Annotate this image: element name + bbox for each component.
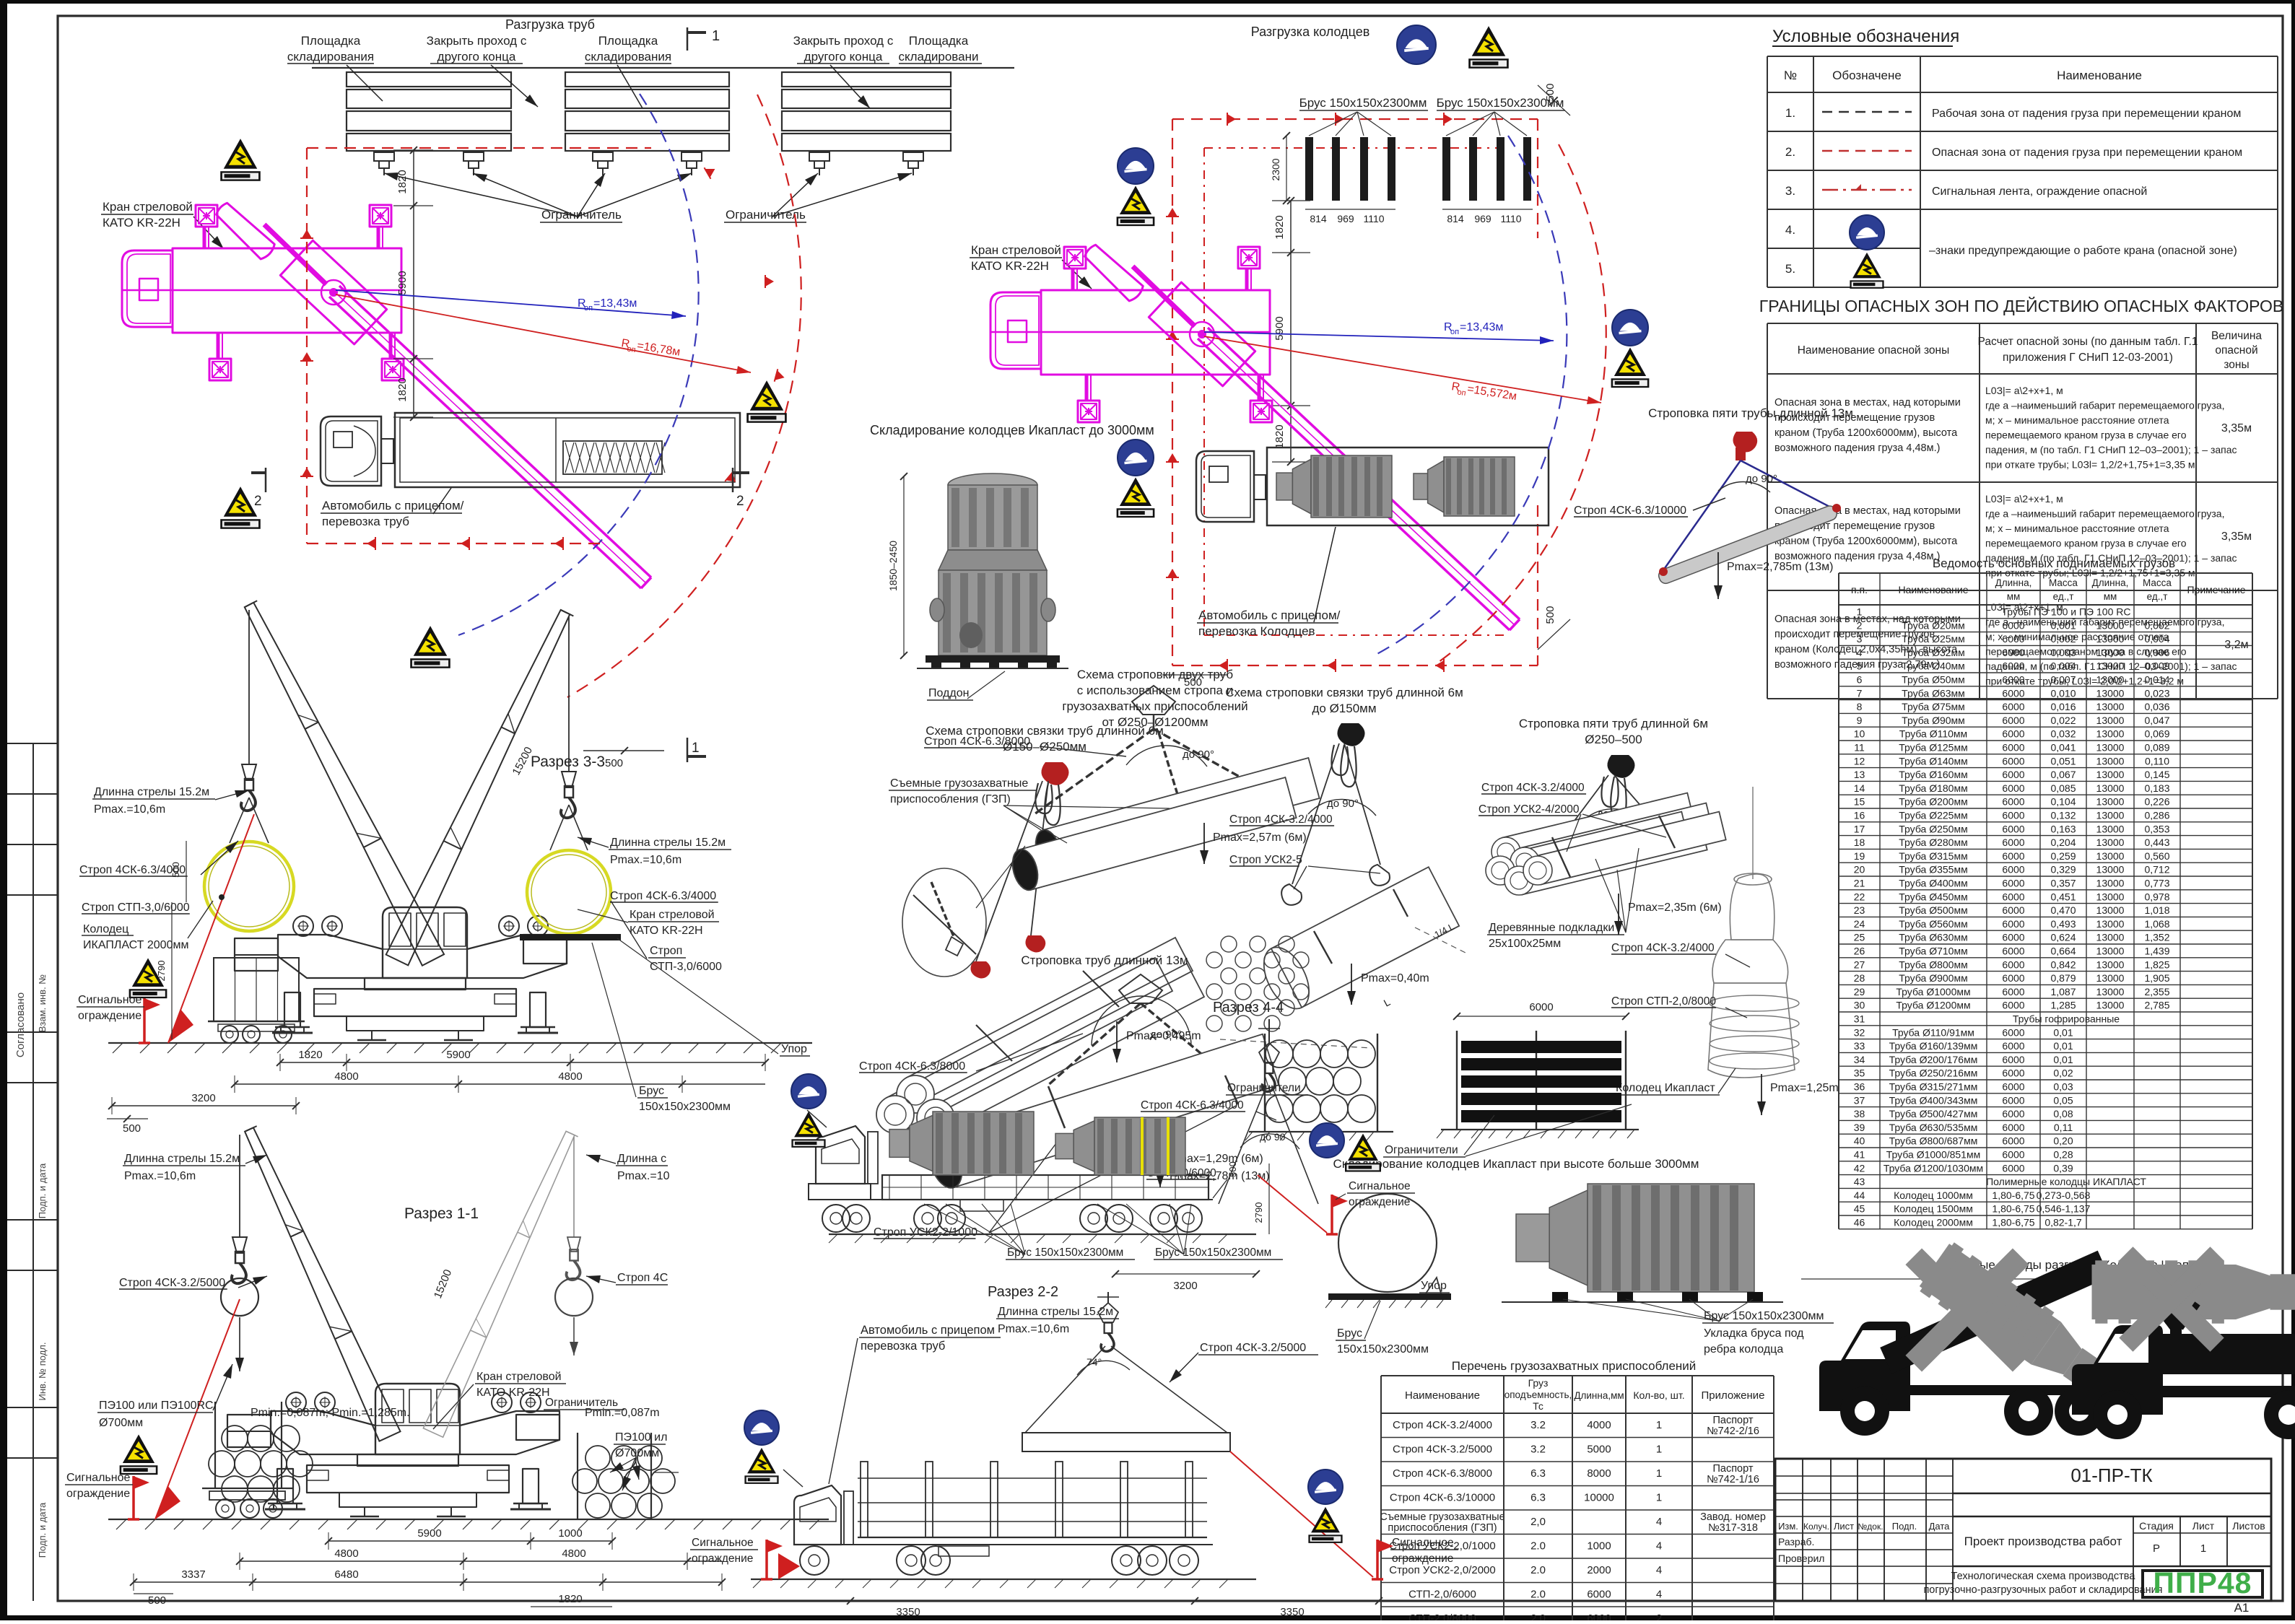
svg-text:6000: 6000 <box>2002 864 2024 876</box>
svg-text:Ограничитель: Ограничитель <box>545 1397 618 1409</box>
svg-text:оп: оп <box>584 304 593 313</box>
svg-text:до 90°: до 90° <box>1327 798 1359 810</box>
svg-text:13000: 13000 <box>2096 891 2125 902</box>
svg-text:4: 4 <box>1857 647 1863 658</box>
svg-text:Pmax.=10,6m: Pmax.=10,6m <box>610 854 681 866</box>
svg-text:1820: 1820 <box>558 1593 582 1605</box>
svg-text:Труба Ø200мм: Труба Ø200мм <box>1899 796 1967 808</box>
svg-text:Труба Ø560мм: Труба Ø560мм <box>1899 918 1967 930</box>
svg-text:краном (Труба 1200х6000мм), вы: краном (Труба 1200х6000мм), высота <box>1774 427 1958 439</box>
svg-text:Складирование колодцев Икаплас: Складирование колодцев Икапласт при высо… <box>1333 1157 1699 1171</box>
svg-text:до 90°: до 90° <box>1150 1029 1182 1041</box>
svg-text:34: 34 <box>1854 1054 1865 1065</box>
svg-text:возможного падения груза 4,48м: возможного падения груза 4,48м.) <box>1774 442 1940 454</box>
svg-text:Длинна стрелы 15.2м: Длинна стрелы 15.2м <box>124 1153 240 1165</box>
svg-text:СТП-2,0/6000: СТП-2,0/6000 <box>1408 1589 1476 1601</box>
svg-text:3350: 3350 <box>896 1606 920 1618</box>
svg-text:6000: 6000 <box>1529 1001 1553 1013</box>
svg-text:6000: 6000 <box>2002 850 2024 862</box>
svg-text:ограждение: ограждение <box>1392 1553 1453 1565</box>
svg-text:Труба Ø280мм: Труба Ø280мм <box>1899 837 1967 848</box>
svg-text:Р: Р <box>2153 1542 2160 1555</box>
svg-text:0,01: 0,01 <box>2053 1040 2073 1052</box>
svg-text:6000: 6000 <box>2002 1122 2024 1133</box>
svg-text:Труба Ø200/176мм: Труба Ø200/176мм <box>1889 1054 1978 1065</box>
svg-text:1: 1 <box>1656 1444 1662 1456</box>
svg-text:8: 8 <box>1857 701 1863 712</box>
svg-text:0,01: 0,01 <box>2053 1054 2073 1065</box>
svg-text:Укладка бруса под: Укладка бруса под <box>1704 1327 1804 1340</box>
svg-text:0,28: 0,28 <box>2053 1149 2073 1161</box>
svg-text:2000: 2000 <box>1587 1564 1611 1576</box>
svg-text:2300: 2300 <box>1270 158 1281 180</box>
svg-text:0,032: 0,032 <box>2050 728 2076 740</box>
svg-text:13000: 13000 <box>2096 647 2125 658</box>
svg-text:Строп СТП-3,0/6000: Строп СТП-3,0/6000 <box>82 902 190 914</box>
svg-text:Труба Ø710мм: Труба Ø710мм <box>1899 946 1967 957</box>
svg-text:42: 42 <box>1854 1162 1865 1174</box>
svg-text:Строп 4СК-3.2/4000: Строп 4СК-3.2/4000 <box>1393 1419 1492 1431</box>
svg-text:Труба Ø500/427мм: Труба Ø500/427мм <box>1889 1108 1978 1119</box>
svg-text:Кран стреловой: Кран стреловой <box>971 243 1061 257</box>
svg-text:0,041: 0,041 <box>2050 742 2076 754</box>
svg-text:где а –наименьший габарит пере: где а –наименьший габарит перемещаемого … <box>1985 508 2224 520</box>
svg-text:500: 500 <box>1544 606 1556 624</box>
svg-text:6000: 6000 <box>2002 1000 2024 1011</box>
svg-text:2: 2 <box>254 494 262 509</box>
svg-text:0,010: 0,010 <box>2050 687 2076 699</box>
svg-text:2.: 2. <box>1785 145 1795 159</box>
svg-text:Брус 150х150х2300мм: Брус 150х150х2300мм <box>1299 96 1427 110</box>
svg-text:ГРАНИЦЫ ОПАСНЫХ ЗОН ПО ДЕЙСТВИ: ГРАНИЦЫ ОПАСНЫХ ЗОН ПО ДЕЙСТВИЮ ОПАСНЫХ … <box>1759 296 2284 315</box>
svg-text:32: 32 <box>1854 1026 1865 1038</box>
svg-text:13000: 13000 <box>2096 619 2125 631</box>
svg-text:Колодец 1500мм: Колодец 1500мм <box>1894 1203 1973 1215</box>
svg-text:27: 27 <box>1854 959 1865 970</box>
svg-text:оп: оп <box>627 344 637 354</box>
svg-text:Труба Ø900мм: Труба Ø900мм <box>1899 972 1967 984</box>
svg-text:Деревянные подкладки: Деревянные подкладки <box>1489 922 1614 934</box>
svg-text:мм: мм <box>2104 591 2117 602</box>
svg-text:Расчет опасной зоны (по данным: Расчет опасной зоны (по данным табл. Г.1 <box>1978 336 2198 348</box>
svg-text:Труба Ø180мм: Труба Ø180мм <box>1899 782 1967 794</box>
svg-text:Опасная зона от падения груза: Опасная зона от падения груза при переме… <box>1932 147 2242 159</box>
svg-text:Труба Ø400/343мм: Труба Ø400/343мм <box>1889 1094 1978 1106</box>
svg-text:Труба Ø800мм: Труба Ø800мм <box>1899 959 1967 970</box>
svg-text:6000: 6000 <box>2002 1162 2024 1174</box>
svg-text:Опасная зона в местах, над кот: Опасная зона в местах, над которыми <box>1774 505 1961 517</box>
svg-text:Pmax=2,785m (13м): Pmax=2,785m (13м) <box>1727 561 1834 573</box>
svg-text:Схема строповки двух труб: Схема строповки двух труб <box>1077 668 1233 681</box>
svg-text:46: 46 <box>1854 1217 1865 1228</box>
svg-text:при откате трубы; L0Зl= 1,2/2+: при откате трубы; L0Зl= 1,2/2+1,75+1=3,3… <box>1985 459 2195 471</box>
svg-text:814: 814 <box>1310 213 1327 224</box>
svg-text:26: 26 <box>1854 946 1865 957</box>
svg-text:11: 11 <box>1854 742 1865 754</box>
svg-text:Подп.: Подп. <box>1892 1521 1917 1532</box>
svg-text:№742-2/16: №742-2/16 <box>1707 1426 1759 1437</box>
svg-text:1000: 1000 <box>1587 1540 1611 1553</box>
svg-text:7: 7 <box>1857 687 1863 699</box>
svg-text:2,785: 2,785 <box>2144 1000 2169 1011</box>
svg-text:Кран стреловой: Кран стреловой <box>630 909 715 921</box>
svg-text:Колодец: Колодец <box>83 923 129 935</box>
svg-text:Наименование опасной зоны: Наименование опасной зоны <box>1798 344 1950 357</box>
svg-text:0,560: 0,560 <box>2144 850 2169 862</box>
svg-text:01-ПР-ТК: 01-ПР-ТК <box>2070 1464 2152 1486</box>
svg-text:1850–2450: 1850–2450 <box>887 541 899 591</box>
svg-text:ед.,т: ед.,т <box>2053 591 2074 602</box>
svg-text:складирования: складирования <box>585 50 671 64</box>
svg-text:29: 29 <box>1854 986 1865 997</box>
svg-text:Труба Ø90мм: Труба Ø90мм <box>1902 715 1965 726</box>
svg-text:Закрыть проход с: Закрыть проход с <box>793 34 894 48</box>
svg-text:1: 1 <box>2200 1542 2206 1555</box>
svg-text:Паспорт: Паспорт <box>1712 1415 1753 1426</box>
svg-text:10000: 10000 <box>1584 1492 1614 1504</box>
svg-text:Автомобиль с прицепом: Автомобиль с прицепом <box>861 1324 995 1337</box>
svg-text:814: 814 <box>1447 213 1464 224</box>
svg-text:2,355: 2,355 <box>2144 986 2169 997</box>
svg-text:3337: 3337 <box>181 1568 205 1581</box>
svg-text:приспособления (ГЗП): приспособления (ГЗП) <box>1388 1522 1497 1534</box>
svg-text:0,546-1,137: 0,546-1,137 <box>2037 1203 2091 1215</box>
svg-text:35: 35 <box>1854 1068 1865 1079</box>
svg-text:6000: 6000 <box>2002 782 2024 794</box>
svg-text:Рабочая зона от падения груза: Рабочая зона от падения груза при переме… <box>1932 108 2241 120</box>
svg-text:Лист: Лист <box>1834 1521 1854 1532</box>
svg-text:погрузочно-разгрузочных работ: погрузочно-разгрузочных работ и складиро… <box>1923 1584 2162 1596</box>
svg-text:33: 33 <box>1854 1040 1865 1052</box>
svg-text:13000: 13000 <box>2096 674 2125 686</box>
svg-text:41: 41 <box>1854 1149 1865 1161</box>
svg-text:А1: А1 <box>2234 1601 2250 1615</box>
svg-text:0,069: 0,069 <box>2144 728 2169 740</box>
svg-text:Схема строповки связки труб дл: Схема строповки связки труб длинной 6м <box>1225 686 1463 699</box>
svg-text:Ограничители: Ограничители <box>1385 1144 1458 1156</box>
svg-text:Разрез 2-2: Разрез 2-2 <box>988 1284 1058 1300</box>
svg-text:0,01: 0,01 <box>2053 1026 2073 1038</box>
svg-text:13000: 13000 <box>2096 796 2125 808</box>
svg-text:1,825: 1,825 <box>2144 959 2169 970</box>
svg-text:12: 12 <box>1854 755 1865 767</box>
svg-text:13000: 13000 <box>2096 1000 2125 1011</box>
svg-text:Строп 4СК-3.2/5000: Строп 4СК-3.2/5000 <box>1200 1342 1306 1354</box>
svg-text:0,11: 0,11 <box>2054 1122 2073 1133</box>
svg-text:13000: 13000 <box>2096 864 2125 876</box>
svg-text:500: 500 <box>170 862 181 878</box>
svg-text:969: 969 <box>1337 213 1354 224</box>
svg-text:13000: 13000 <box>2096 823 2125 834</box>
svg-text:0,183: 0,183 <box>2144 782 2169 794</box>
svg-text:1: 1 <box>1857 606 1863 618</box>
svg-text:74°: 74° <box>1086 1356 1102 1368</box>
svg-text:13000: 13000 <box>2096 782 2125 794</box>
svg-text:0,003: 0,003 <box>2050 647 2076 658</box>
svg-text:16: 16 <box>1854 810 1865 821</box>
svg-text:Строп УСК2-5: Строп УСК2-5 <box>1229 854 1302 866</box>
svg-text:Труба Ø63мм: Труба Ø63мм <box>1902 687 1965 699</box>
svg-text:Поддон: Поддон <box>928 687 969 699</box>
svg-text:6000: 6000 <box>2002 1135 2024 1147</box>
svg-text:где а –наименьший габарит пере: где а –наименьший габарит перемещаемого … <box>1985 400 2224 411</box>
svg-text:Технологическая схема производ: Технологическая схема производства <box>1951 1571 2136 1582</box>
svg-text:6000: 6000 <box>1587 1612 1611 1620</box>
svg-text:=13,43м: =13,43м <box>593 297 637 310</box>
svg-text:Колодец 2000мм: Колодец 2000мм <box>1894 1217 1973 1228</box>
svg-text:13000: 13000 <box>2096 946 2125 957</box>
svg-text:4800: 4800 <box>334 1547 358 1560</box>
svg-text:Условные обозначения: Условные обозначения <box>1772 27 1959 46</box>
svg-text:Pmax=2,35m (6м): Pmax=2,35m (6м) <box>1628 902 1722 914</box>
svg-text:2.0: 2.0 <box>1530 1612 1546 1620</box>
svg-text:13000: 13000 <box>2096 959 2125 970</box>
svg-text:13000: 13000 <box>2096 701 2125 712</box>
svg-text:ограждение: ограждение <box>78 1010 141 1022</box>
svg-text:от Ø250–Ø1200мм: от Ø250–Ø1200мм <box>1102 715 1208 729</box>
svg-text:2.0: 2.0 <box>1530 1589 1546 1601</box>
svg-text:38: 38 <box>1854 1108 1865 1119</box>
svg-text:1: 1 <box>1656 1467 1662 1480</box>
svg-text:Сигнальное: Сигнальное <box>1349 1180 1411 1192</box>
svg-text:перемещаемого краном груза в с: перемещаемого краном груза в случае его <box>1985 429 2187 441</box>
svg-text:Pmax.=10,6m: Pmax.=10,6m <box>94 803 165 816</box>
svg-text:6000: 6000 <box>2002 755 2024 767</box>
svg-text:0,002: 0,002 <box>2050 633 2076 645</box>
svg-text:500: 500 <box>123 1122 141 1135</box>
svg-text:Разрез 4-4: Разрез 4-4 <box>1213 1000 1284 1016</box>
svg-text:13000: 13000 <box>2096 986 2125 997</box>
svg-text:0,664: 0,664 <box>2050 946 2076 957</box>
svg-text:1,018: 1,018 <box>2144 904 2169 916</box>
svg-text:18: 18 <box>1854 837 1865 848</box>
svg-text:Строп УСК2-2,0/2000: Строп УСК2-2,0/2000 <box>1389 1564 1496 1576</box>
svg-text:Складирование колодцев Икаплас: Складирование колодцев Икапласт до 3000м… <box>870 423 1154 437</box>
svg-text:Труба Ø32мм: Труба Ø32мм <box>1902 647 1965 658</box>
svg-text:Длинна стрелы 15.2м: Длинна стрелы 15.2м <box>94 786 209 798</box>
svg-text:40: 40 <box>1854 1135 1865 1147</box>
svg-text:5900: 5900 <box>396 271 409 294</box>
svg-text:приложения Г СНиП 12-03-2001): приложения Г СНиП 12-03-2001) <box>2003 352 2173 364</box>
svg-text:Наименование: Наименование <box>1898 584 1968 595</box>
svg-text:150х150х2300мм: 150х150х2300мм <box>639 1101 731 1113</box>
svg-text:1820: 1820 <box>396 170 409 193</box>
svg-text:2,0: 2,0 <box>1530 1516 1546 1528</box>
svg-text:Труба Ø160/139мм: Труба Ø160/139мм <box>1889 1040 1978 1052</box>
svg-text:6000: 6000 <box>2002 986 2024 997</box>
svg-text:Труба Ø110/91мм: Труба Ø110/91мм <box>1892 1026 1974 1038</box>
svg-text:6000: 6000 <box>2002 674 2024 686</box>
svg-text:КАТО KR-22Н: КАТО KR-22Н <box>971 259 1049 273</box>
svg-text:Труба Ø160мм: Труба Ø160мм <box>1899 769 1967 780</box>
svg-text:36: 36 <box>1854 1081 1865 1093</box>
svg-text:1,285: 1,285 <box>2050 1000 2076 1011</box>
svg-text:Pmin.=0,087m; Pmin.=1,285m.: Pmin.=0,087m; Pmin.=1,285m. <box>251 1407 410 1419</box>
svg-text:6000: 6000 <box>2002 878 2024 889</box>
svg-text:ограждение: ограждение <box>692 1553 753 1565</box>
svg-text:6000: 6000 <box>2002 918 2024 930</box>
svg-text:13000: 13000 <box>2096 837 2125 848</box>
svg-text:Примечание: Примечание <box>2187 584 2245 595</box>
svg-text:с использованием стропа и: с использованием стропа и <box>1077 684 1233 697</box>
svg-text:ППР48: ППР48 <box>2154 1566 2252 1599</box>
svg-text:Проект производства работ: Проект производства работ <box>1964 1534 2122 1548</box>
svg-text:3,2м: 3,2м <box>2224 639 2248 651</box>
svg-text:Взам. инв. №: Взам. инв. № <box>37 974 48 1033</box>
svg-text:22: 22 <box>1854 891 1865 902</box>
svg-text:4000: 4000 <box>1587 1419 1611 1431</box>
svg-text:Завод. номер: Завод. номер <box>1700 1511 1766 1523</box>
svg-text:0,145: 0,145 <box>2144 769 2169 780</box>
svg-text:Сигнальное: Сигнальное <box>66 1472 130 1484</box>
svg-text:ребра колодца: ребра колодца <box>1704 1343 1783 1355</box>
svg-text:Листов: Листов <box>2232 1520 2265 1532</box>
svg-text:Pmax.=10: Pmax.=10 <box>617 1170 670 1182</box>
svg-text:3350: 3350 <box>1280 1606 1304 1618</box>
svg-text:Труба Ø800/687мм: Труба Ø800/687мм <box>1889 1135 1978 1147</box>
svg-text:9: 9 <box>1857 715 1863 726</box>
svg-text:складирования: складирования <box>287 50 374 64</box>
svg-text:КАТО KR-22Н: КАТО KR-22Н <box>476 1387 550 1399</box>
svg-text:4: 4 <box>1656 1564 1662 1576</box>
svg-text:перевозка труб: перевозка труб <box>322 515 409 528</box>
svg-text:Труба Ø315мм: Труба Ø315мм <box>1899 850 1967 862</box>
svg-text:6000: 6000 <box>2002 1081 2024 1093</box>
svg-text:500: 500 <box>148 1594 166 1607</box>
svg-text:Труба Ø1200/1030мм: Труба Ø1200/1030мм <box>1884 1162 1983 1174</box>
svg-text:3,35м: 3,35м <box>2221 531 2252 543</box>
svg-text:Площадка: Площадка <box>909 34 969 48</box>
svg-text:другого конца: другого конца <box>804 50 883 64</box>
svg-text:Съемные грузозахватные: Съемные грузозахватные <box>890 777 1028 790</box>
svg-text:6000: 6000 <box>2002 1068 2024 1079</box>
svg-text:п.п.: п.п. <box>1851 584 1868 595</box>
svg-text:1,80-6,75: 1,80-6,75 <box>1992 1203 2034 1215</box>
svg-text:Масса: Масса <box>2049 577 2078 588</box>
svg-text:Строп 4СК-3.2/5000: Строп 4СК-3.2/5000 <box>1393 1444 1492 1456</box>
svg-text:0,02: 0,02 <box>2053 1068 2073 1079</box>
svg-text:1,087: 1,087 <box>2050 986 2076 997</box>
svg-text:6000: 6000 <box>1587 1589 1611 1601</box>
svg-text:6000: 6000 <box>2002 932 2024 943</box>
svg-text:Труба Ø630мм: Труба Ø630мм <box>1899 932 1967 943</box>
svg-text:13000: 13000 <box>2096 742 2125 754</box>
svg-text:6000: 6000 <box>2002 959 2024 970</box>
svg-text:6000: 6000 <box>2002 1108 2024 1119</box>
svg-text:Труба Ø1200мм: Труба Ø1200мм <box>1896 1000 1970 1011</box>
svg-text:0,05: 0,05 <box>2053 1094 2073 1106</box>
svg-text:Длинна стрелы 15.2м: Длинна стрелы 15.2м <box>998 1306 1113 1318</box>
svg-text:Труба Ø20мм: Труба Ø20мм <box>1902 619 1965 631</box>
svg-text:1820: 1820 <box>1273 215 1286 239</box>
svg-text:Ведомость основных поднимаемых: Ведомость основных поднимаемых грузов <box>1933 556 2175 570</box>
svg-text:Ø700мм: Ø700мм <box>615 1447 659 1459</box>
svg-text:Труба Ø355мм: Труба Ø355мм <box>1899 864 1967 876</box>
svg-text:1000: 1000 <box>558 1527 582 1540</box>
svg-text:0,773: 0,773 <box>2144 878 2169 889</box>
svg-text:2790: 2790 <box>156 961 167 982</box>
svg-text:1: 1 <box>692 741 700 756</box>
svg-text:Колодец Икапласт: Колодец Икапласт <box>1616 1082 1715 1094</box>
svg-text:Сигнальная лента, ограждение о: Сигнальная лента, ограждение опасной <box>1932 185 2147 198</box>
svg-text:Подп. и дата: Подп. и дата <box>37 1502 48 1558</box>
svg-text:3.2: 3.2 <box>1530 1419 1546 1431</box>
svg-text:Кол-во, шт.: Кол-во, шт. <box>1633 1389 1684 1401</box>
svg-text:5000: 5000 <box>1587 1444 1611 1456</box>
svg-text:0,014: 0,014 <box>2144 674 2169 686</box>
svg-text:4800: 4800 <box>558 1070 582 1083</box>
svg-text:Сигнальное: Сигнальное <box>1392 1537 1454 1549</box>
svg-text:Брус: Брус <box>1337 1327 1362 1340</box>
svg-text:Строп 4СК-6.3/8000: Строп 4СК-6.3/8000 <box>1393 1467 1492 1480</box>
svg-text:30: 30 <box>1854 1000 1865 1011</box>
svg-text:Строп 4СК-6.3/10000: Строп 4СК-6.3/10000 <box>1390 1492 1495 1504</box>
svg-text:0,82-1,7: 0,82-1,7 <box>2044 1217 2082 1228</box>
svg-text:Согласовано: Согласовано <box>14 992 27 1057</box>
svg-text:6000: 6000 <box>2002 837 2024 848</box>
svg-text:Труба Ø400мм: Труба Ø400мм <box>1899 878 1967 889</box>
svg-text:6000: 6000 <box>2002 769 2024 780</box>
svg-text:13000: 13000 <box>2096 972 2125 984</box>
svg-text:1110: 1110 <box>1500 213 1521 224</box>
svg-text:падения, м (по табл. Г1 СНиП 1: падения, м (по табл. Г1 СНиП 12–03–2001)… <box>1985 444 2237 455</box>
svg-text:0,023: 0,023 <box>2144 687 2169 699</box>
svg-text:Труба Ø50мм: Труба Ø50мм <box>1902 674 1965 686</box>
svg-text:0,067: 0,067 <box>2050 769 2076 780</box>
svg-text:0,493: 0,493 <box>2050 918 2076 930</box>
svg-text:Кран стреловой: Кран стреловой <box>103 200 193 214</box>
svg-text:ограждение: ограждение <box>1349 1196 1410 1208</box>
svg-text:13000: 13000 <box>2096 687 2125 699</box>
svg-text:краном (Труба 1200х6000мм), вы: краном (Труба 1200х6000мм), высота <box>1774 536 1958 547</box>
svg-text:Подп. и дата: Подп. и дата <box>37 1163 48 1218</box>
svg-text:2: 2 <box>736 494 744 509</box>
svg-text:мм: мм <box>2007 591 2021 602</box>
svg-text:0,085: 0,085 <box>2050 782 2076 794</box>
svg-text:Масса: Масса <box>2143 577 2172 588</box>
svg-text:Труба Ø125мм: Труба Ø125мм <box>1899 742 1967 754</box>
svg-text:1,80-6,75: 1,80-6,75 <box>1992 1217 2034 1228</box>
svg-text:0,978: 0,978 <box>2144 891 2169 902</box>
svg-text:м; х – минимальное расстояние: м; х – минимальное расстояние отлета <box>1985 414 2169 426</box>
svg-text:150х150х2300мм: 150х150х2300мм <box>1337 1343 1429 1355</box>
svg-text:Труба Ø1000мм: Труба Ø1000мм <box>1896 986 1970 997</box>
svg-text:1,068: 1,068 <box>2144 918 2169 930</box>
svg-text:6000: 6000 <box>2002 1026 2024 1038</box>
svg-text:0,047: 0,047 <box>2144 715 2169 726</box>
svg-text:0,001: 0,001 <box>2050 619 2076 631</box>
svg-text:Труба Ø140мм: Труба Ø140мм <box>1899 755 1967 767</box>
svg-text:№742-1/16: №742-1/16 <box>1707 1474 1759 1485</box>
svg-text:Труба Ø250мм: Труба Ø250мм <box>1899 823 1967 834</box>
svg-text:6000: 6000 <box>2002 619 2024 631</box>
svg-text:0,712: 0,712 <box>2144 864 2169 876</box>
svg-text:зоны: зоны <box>2224 359 2249 371</box>
svg-text:Разгрузка колодцев: Разгрузка колодцев <box>1251 25 1370 39</box>
svg-text:перемещаемого краном груза в с: перемещаемого краном груза в случае его <box>1985 538 2187 549</box>
svg-text:Величина: Величина <box>2211 330 2262 342</box>
svg-text:6000: 6000 <box>2002 1149 2024 1161</box>
svg-text:L0З|= а\2+х+1, м: L0З|= а\2+х+1, м <box>1985 493 2063 505</box>
svg-text:Разраб.: Разраб. <box>1778 1536 1814 1547</box>
svg-text:2.0: 2.0 <box>1530 1564 1546 1576</box>
svg-text:0,004: 0,004 <box>2144 633 2169 645</box>
svg-text:приспособления (ГЗП): приспособления (ГЗП) <box>890 793 1011 806</box>
svg-text:3.: 3. <box>1785 184 1795 198</box>
svg-text:Длинна с: Длинна с <box>617 1153 666 1165</box>
svg-text:1,905: 1,905 <box>2144 972 2169 984</box>
svg-text:перевозка Колодцев: перевозка Колодцев <box>1198 624 1315 638</box>
